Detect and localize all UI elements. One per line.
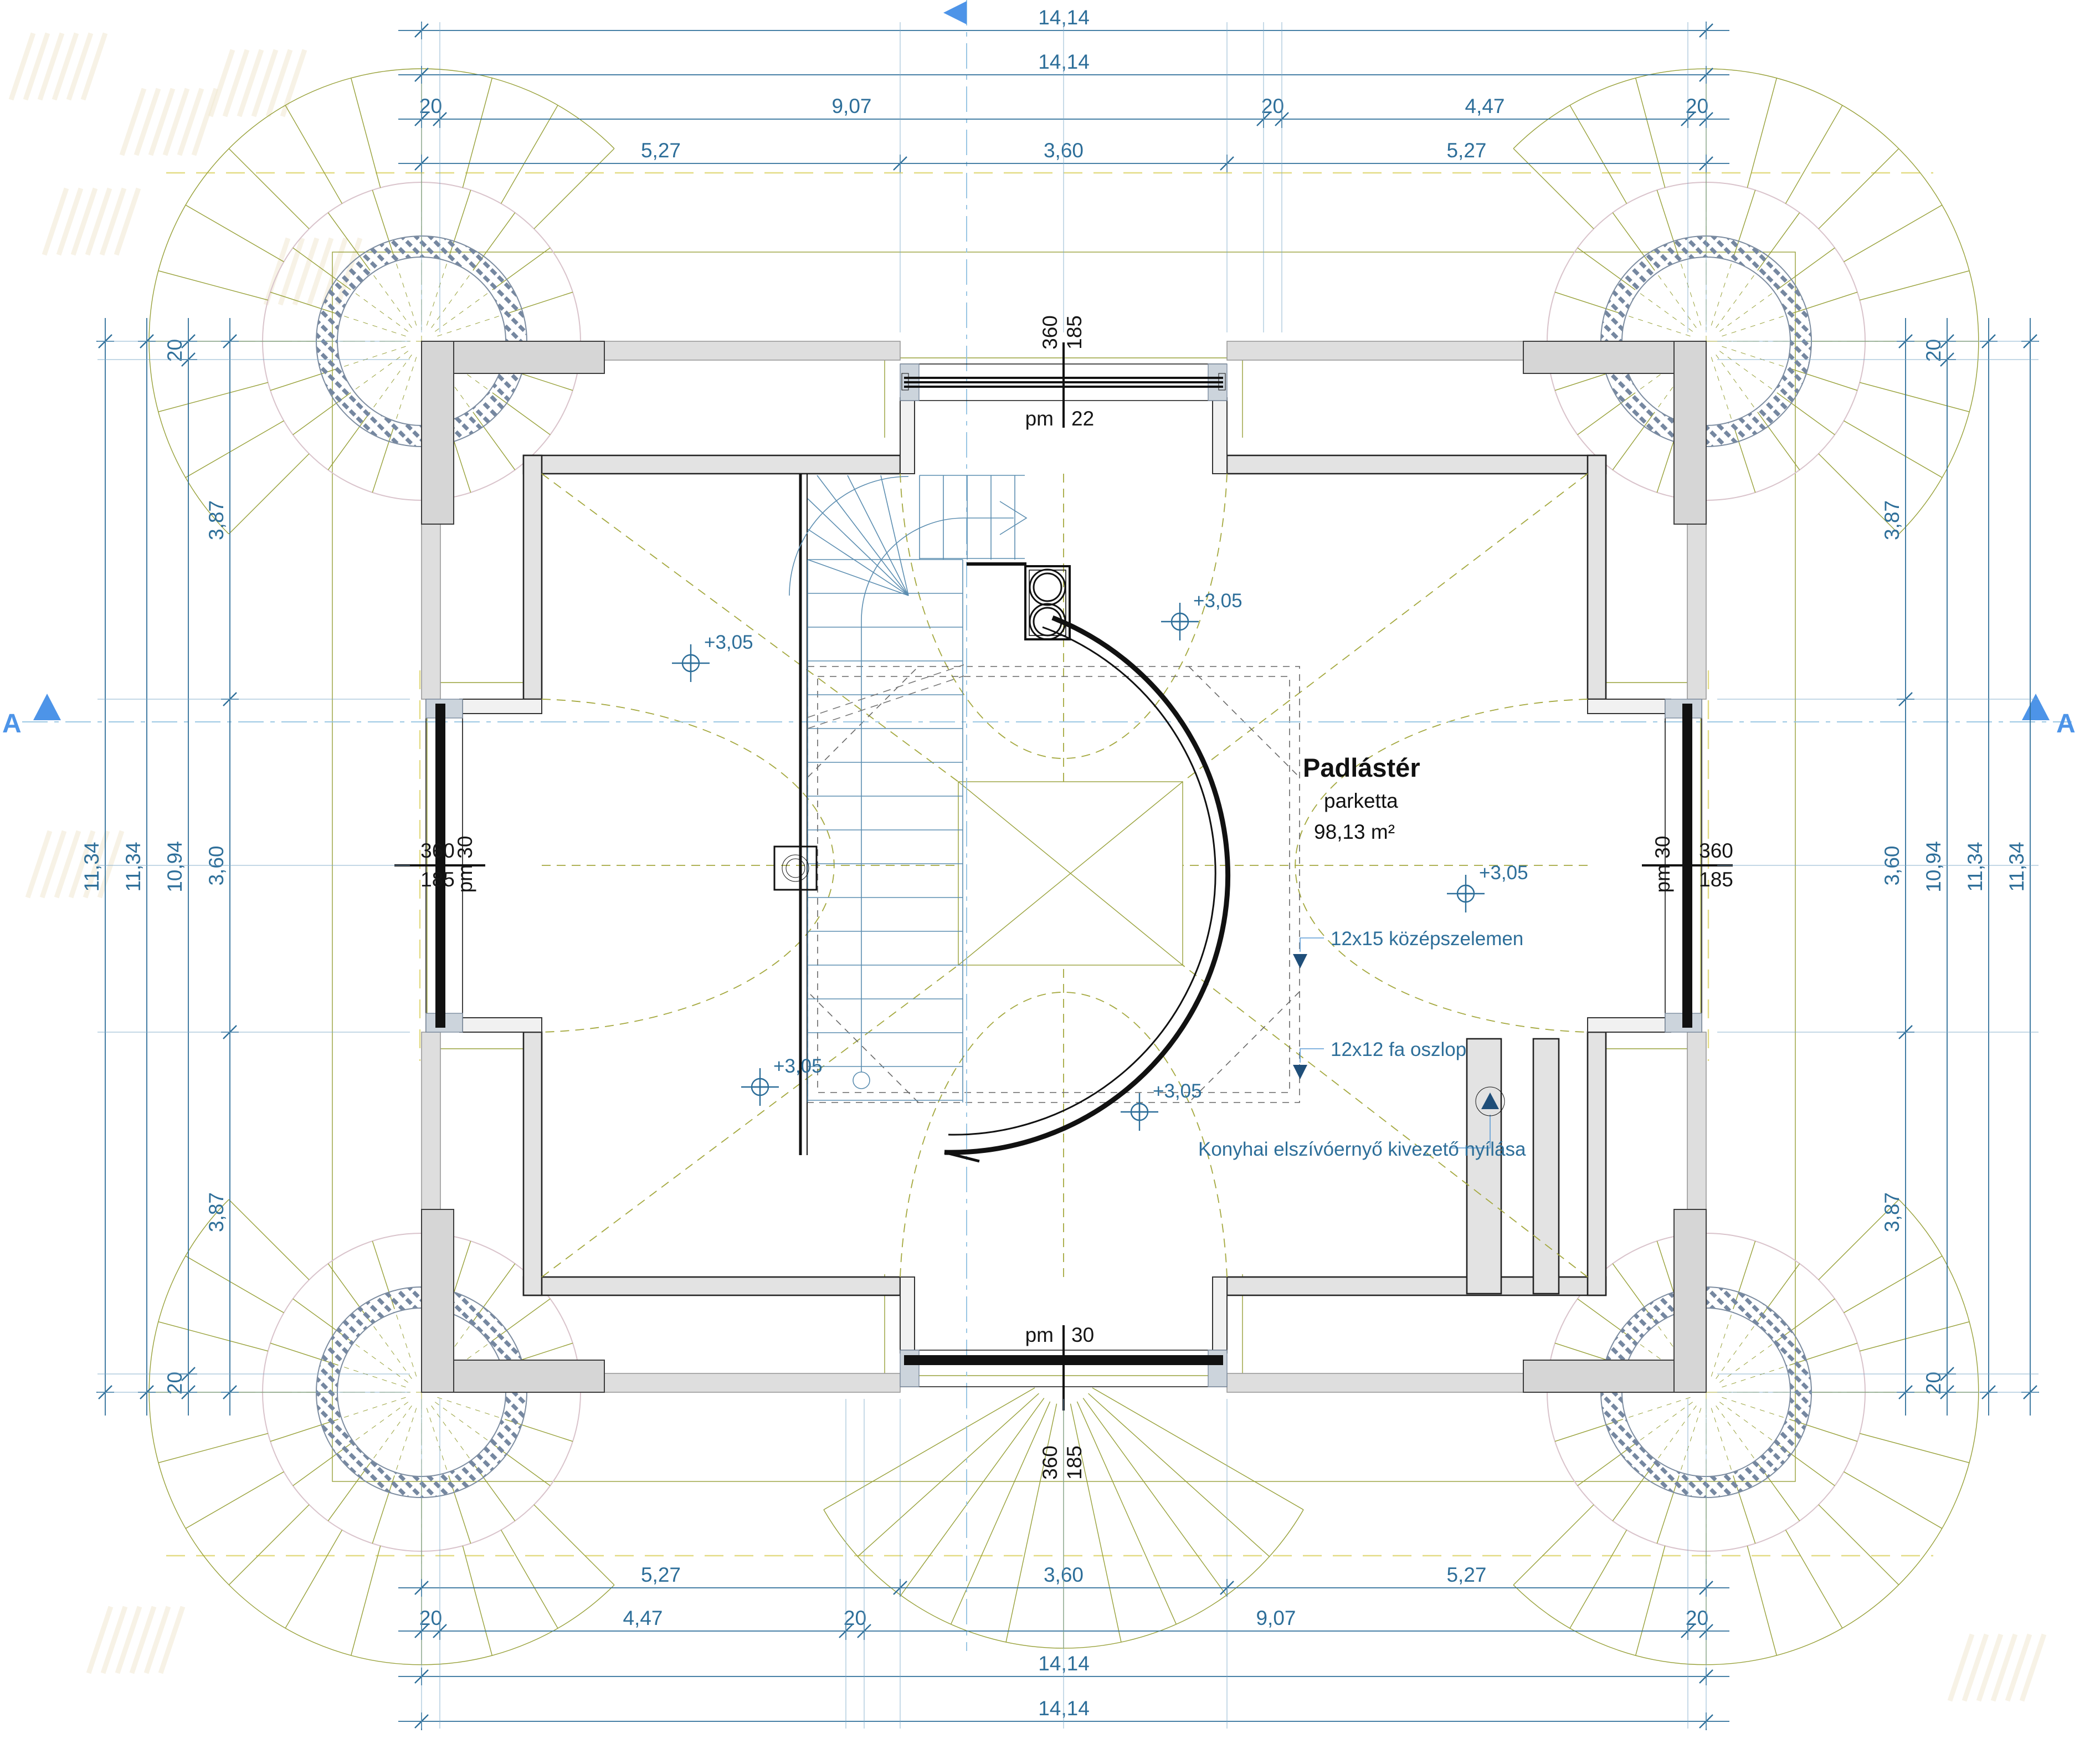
tower-bottom-left-fan-rafter [463,1546,492,1655]
floor-plan-drawing: 360185pm22pm30360185360185pm 30360185pm … [0,0,2100,1764]
purlin-arrow [1293,954,1307,968]
tower-top-right-rafter-inner [1711,357,1732,421]
tower-bottom-right-rafter-inner [1716,1406,1755,1459]
dimension-value: 5,27 [1446,139,1486,162]
dimension-value: 10,94 [1922,841,1945,893]
top-bay-return [900,398,915,474]
bottom-bay-fan-rafter [1088,1393,1270,1556]
dimension-value: 3,87 [205,500,228,540]
dimension-value: 11,34 [122,842,145,892]
knee-wall-left-bottom [523,1032,542,1295]
corner-wall [1674,341,1706,524]
tower-top-right-fan-rafter [1844,205,1943,262]
tower-top-right-rafter-inner [1716,274,1755,328]
tower-bottom-right-fan-rafter [1570,1530,1627,1629]
tower-top-left-rafter-inner [435,293,489,332]
knee-wall-bottom-left [523,1277,900,1295]
interior-wall [1533,1039,1559,1294]
tower-bottom-left-rafter-inner [396,1408,417,1471]
dimension-value: 20 [1922,1372,1945,1394]
tower-bottom-left-rafter-inner [342,1397,405,1418]
tower-top-left-fan-rafter [186,421,284,478]
tower-bottom-right-rafter-inner [1719,1343,1773,1383]
top-bay-return [1213,398,1227,474]
tower-top-left-rafter-inner [342,316,405,336]
tower-bottom-left-fan-rafter [186,1472,284,1529]
tower-bottom-left-rafter-inner [355,1343,408,1383]
dimension-value: 9,07 [831,95,871,117]
dimension-value: 5,27 [1446,1563,1486,1586]
tower-top-right-rafter-inner [1711,262,1732,325]
dimension-value: 20 [163,339,186,362]
room-finish: parketta [1324,789,1398,812]
dimension-value: 3,87 [205,1192,228,1232]
window-bottom-parapet: pm [1025,1324,1054,1346]
window-top-parapet: 22 [1071,407,1094,430]
tower-bottom-right-fan-rafter [1636,1546,1665,1655]
right-bay-roof-arc [1295,699,1588,1032]
small-flue-block [774,847,817,890]
section-label-right: A [2056,709,2076,739]
tower-bottom-left-fan-rafter [351,1546,381,1655]
post-frame-brace [808,992,918,1102]
tower-top-left-fan-rafter [158,382,268,412]
window-right-height: 185 [1699,868,1733,891]
tower-top-left-fan-rafter [351,78,381,188]
bottom-bay-fan-rafter [951,1402,1050,1624]
tower-bottom-left-rafter-inner [373,1406,412,1459]
tower-bottom-left-fan-rafter [186,1256,284,1313]
window-bottom-parapet: 30 [1071,1324,1094,1346]
tower-bottom-left-fan-rafter [158,1433,268,1463]
tower-top-left-fan-rafter [463,78,492,188]
level-marker-quad [760,1079,768,1087]
tower-top-left-fan-rafter [501,105,558,204]
section-arrow-left [33,694,61,720]
dimension-value: 9,07 [1256,1607,1296,1629]
tower-top-left-fan-rafter [186,205,284,262]
tower-top-right-rafter-inner [1719,293,1773,332]
dimension-value: 4,47 [1465,95,1505,117]
interior-wall [1467,1039,1501,1294]
tower-bottom-right-rafter-inner [1719,1402,1773,1442]
stair-winder-tread [808,529,908,596]
tower-top-right-fan-rafter [1860,271,1969,300]
tower-top-right-rafter-inner [1722,346,1785,367]
level-marker-text: +3,05 [1193,590,1242,612]
section-arrow-top [943,1,967,24]
corner-wall [422,341,454,524]
tower-bottom-left-fan-rafter [229,1505,309,1585]
tower-bottom-right-fan-rafter [1860,1322,1969,1351]
window-left-height: 185 [420,868,455,891]
level-marker-text: +3,05 [1479,862,1528,884]
tower-bottom-right-fan-rafter [1860,1433,1969,1463]
stair-cut-line [808,665,964,717]
generated-drawing: 360185pm22pm30360185360185pm 30360185pm … [11,0,2072,1730]
post-label: 12x12 fa oszlop [1331,1039,1466,1060]
small-flue [786,859,805,878]
tower-top-left-rafter-inner [355,351,408,391]
dimension-value: 3,87 [1881,1192,1903,1232]
tower-bottom-left-rafter-inner [432,1406,471,1459]
tower-top-right-fan-rafter [1860,382,1969,412]
tower-bottom-right-rafter-inner [1722,1367,1785,1387]
bottom-bay-return [900,1277,915,1353]
level-marker-quad [1457,894,1466,902]
level-marker-quad [1180,613,1188,622]
dimension-value: 5,27 [641,1563,681,1586]
dimension-value: 20 [1686,1607,1708,1629]
dimension-value: 4,47 [623,1607,663,1629]
tower-top-right-rafter-inner [1627,316,1690,336]
bottom-bay-return [1213,1277,1227,1353]
tower-bottom-left-rafter-inner [438,1397,501,1418]
stair-walk-start [853,1072,870,1089]
post-arrow [1293,1065,1307,1079]
dimension-value: 20 [419,1607,442,1629]
tower-bottom-right-fan-rafter [1513,1505,1594,1585]
corner-wall [1674,1209,1706,1392]
tower-bottom-left-rafter-inner [435,1402,489,1442]
tower-bottom-right-rafter-inner [1681,1408,1701,1471]
tower-bottom-right-rafter-inner [1657,1406,1697,1459]
window-bottom-width: 360 [1039,1445,1061,1480]
level-marker-quad [1131,1112,1139,1120]
left-bay-roof-arc [542,699,834,1032]
tower-top-right-rafter-inner [1639,293,1693,332]
window-top-height: 185 [1063,315,1086,350]
knee-wall-right-bottom [1588,1032,1606,1295]
tower-top-left-rafter-inner [396,262,417,325]
room-area: 98,13 m² [1314,821,1395,843]
tower-top-left-rafter-inner [427,262,447,325]
tower-top-left-rafter-inner [342,346,405,367]
section-label-left: A [2,709,22,739]
section-arrow-right [2022,694,2050,720]
knee-wall-top-left [523,455,900,474]
tower-top-right-rafter-inner [1657,274,1697,328]
purlin-label: 12x15 középszelemen [1331,928,1523,950]
tower-top-left-rafter-inner [355,293,408,332]
bottom-bay-fan-rafter [1092,1388,1303,1510]
tower-bottom-left-rafter-inner [373,1325,412,1379]
level-marker-text: +3,05 [773,1055,823,1077]
tower-bottom-left-rafter-inner [396,1313,417,1376]
tower-bottom-right-rafter-inner [1716,1325,1755,1379]
level-marker-text: +3,05 [1153,1080,1202,1102]
tower-bottom-left-rafter-inner [342,1367,405,1387]
chimney-flue [1034,573,1061,601]
hip-line [1183,474,1588,782]
main-roof-eave [332,252,1795,1481]
tower-bottom-left-fan-rafter [285,1530,342,1629]
dimension-value: 20 [844,1607,866,1629]
dimension-value: 11,34 [1964,842,1986,892]
level-marker-quad [691,655,699,663]
purlin-leader [1300,938,1324,952]
level-marker-quad [1139,1104,1148,1112]
tower-top-left-rafter-inner [373,355,412,408]
tower-top-right-fan-rafter [1570,105,1627,204]
tower-top-right-rafter-inner [1722,316,1785,336]
level-marker-quad [682,663,691,671]
tower-bottom-right-rafter-inner [1711,1313,1732,1376]
curved-wall-inner [948,627,1215,1135]
tower-bottom-right-fan-rafter [1844,1472,1943,1529]
right-bay-return [1588,699,1671,714]
tower-top-left-fan-rafter [158,271,268,300]
hip-line [1183,965,1588,1277]
right-bay-return [1588,1018,1671,1032]
tower-bottom-left-rafter-inner [427,1408,447,1471]
tower-top-right-fan-rafter [1819,148,1899,229]
tower-top-left-fan-rafter [534,148,614,229]
tower-bottom-right-fan-rafter [1786,1530,1843,1629]
tower-bottom-left-fan-rafter [158,1322,268,1351]
window-left-width: 360 [420,839,455,862]
hip-line [542,474,958,782]
window-right-parapet: pm 30 [1651,836,1674,893]
curved-wall [944,618,1228,1152]
post-frame-inner [818,676,1290,1093]
floor-plan-page: { "room": { "name": "Padlástér", "finish… [0,0,2100,1764]
window-left-parapet: pm 30 [454,836,476,893]
hip-line [542,965,958,1277]
tower-top-right-fan-rafter [1786,105,1843,204]
corner-wall [422,1209,454,1392]
tower-top-right-fan-rafter [1513,148,1594,229]
tower-top-left-rafter-inner [432,274,471,328]
tower-top-right-fan-rafter [1747,78,1776,188]
dimension-value: 10,94 [163,841,186,893]
window-top-width: 360 [1039,315,1061,350]
dimension-value: 20 [1922,339,1945,362]
left-bay-return [460,699,542,714]
tower-top-right-rafter-inner [1716,355,1755,408]
tower-top-right-rafter-inner [1681,262,1701,325]
dimension-value: 5,27 [641,139,681,162]
dimension-value: 20 [1686,95,1708,117]
dimension-value: 11,34 [2005,842,2028,892]
level-marker-text: +3,05 [704,632,753,653]
tower-top-right-fan-rafter [1844,421,1943,478]
tower-bottom-right-rafter-inner [1639,1402,1693,1442]
room-name: Padlástér [1303,753,1420,782]
knee-wall-top-right [1227,455,1606,474]
dimension-value: 20 [419,95,442,117]
tower-top-right-fan-rafter [1636,78,1665,188]
tower-top-left-rafter-inner [396,357,417,421]
tower-bottom-right-rafter-inner [1627,1397,1690,1418]
tower-bottom-left-fan-rafter [501,1530,558,1629]
level-marker-quad [1172,622,1180,630]
bottom-bay-fan-rafter [824,1388,1035,1510]
chimney-flue [1030,570,1065,605]
tower-bottom-right-rafter-inner [1722,1397,1785,1418]
window-right-width: 360 [1699,839,1733,862]
tower-top-left-fan-rafter [285,105,342,204]
post-leader [1300,1049,1324,1063]
post-frame-brace [1189,992,1300,1102]
dimension-value: 20 [163,1372,186,1394]
tower-bottom-right-fan-rafter [1819,1505,1899,1585]
window-bottom-height: 185 [1063,1445,1086,1480]
level-marker-quad [752,1087,760,1095]
tower-top-left-fan-rafter [229,148,309,229]
tower-top-left-rafter-inner [373,274,412,328]
tower-bottom-left-rafter-inner [355,1402,408,1442]
tower-bottom-right-fan-rafter [1844,1256,1943,1313]
dimension-value: 20 [1261,95,1284,117]
tower-top-left-rafter-inner [438,316,501,336]
level-marker-quad [1466,885,1474,894]
tower-top-left-fan-rafter [229,454,309,534]
bottom-bay-fan-rafter [858,1393,1039,1556]
tower-bottom-left-fan-rafter [229,1199,309,1280]
tower-bottom-right-fan-rafter [1747,1546,1776,1655]
kitchen-vent-label: Konyhai elszívóernyő kivezető nyílása [1198,1139,1526,1160]
dimension-value: 3,87 [1881,500,1903,540]
window-top-parapet: pm [1025,407,1054,430]
left-bay-return [460,1018,542,1032]
knee-wall-left-top [523,455,542,699]
knee-wall-right-top [1588,455,1606,699]
dimension-value: 11,34 [80,842,103,892]
tower-top-right-rafter-inner [1719,351,1773,391]
bottom-bay-fan-rafter [1077,1402,1176,1624]
stair-cut-line [808,676,964,729]
tower-bottom-left-fan-rafter [534,1505,614,1585]
tower-bottom-right-rafter-inner [1711,1408,1732,1471]
